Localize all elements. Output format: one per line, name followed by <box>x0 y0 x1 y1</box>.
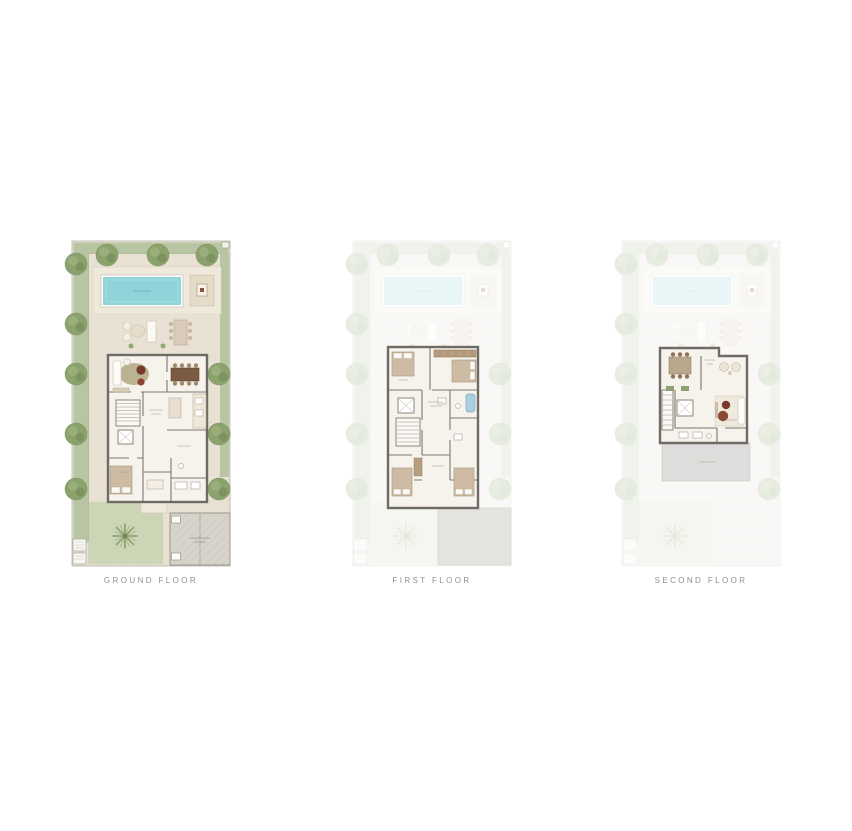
floor-label-second: SECOND FLOOR <box>621 576 781 585</box>
floor-card-ground[interactable]: GROUND FLOOR <box>71 240 231 585</box>
floor-label-first: FIRST FLOOR <box>352 576 512 585</box>
second-floor-building <box>660 348 750 481</box>
ground-floor-building <box>108 355 207 513</box>
floor-label-ground: GROUND FLOOR <box>71 576 231 585</box>
floor-card-first[interactable]: FIRST FLOOR <box>352 240 512 585</box>
ground-floor-plan-image <box>71 240 231 567</box>
floor-plans-page: GROUND FLOOR FIRST FLOOR SECOND FLOOR <box>0 0 852 831</box>
floor-card-second[interactable]: SECOND FLOOR <box>621 240 781 585</box>
car-parking-area <box>170 513 230 565</box>
first-floor-plan-image <box>352 240 512 567</box>
second-floor-plan-image <box>621 240 781 567</box>
